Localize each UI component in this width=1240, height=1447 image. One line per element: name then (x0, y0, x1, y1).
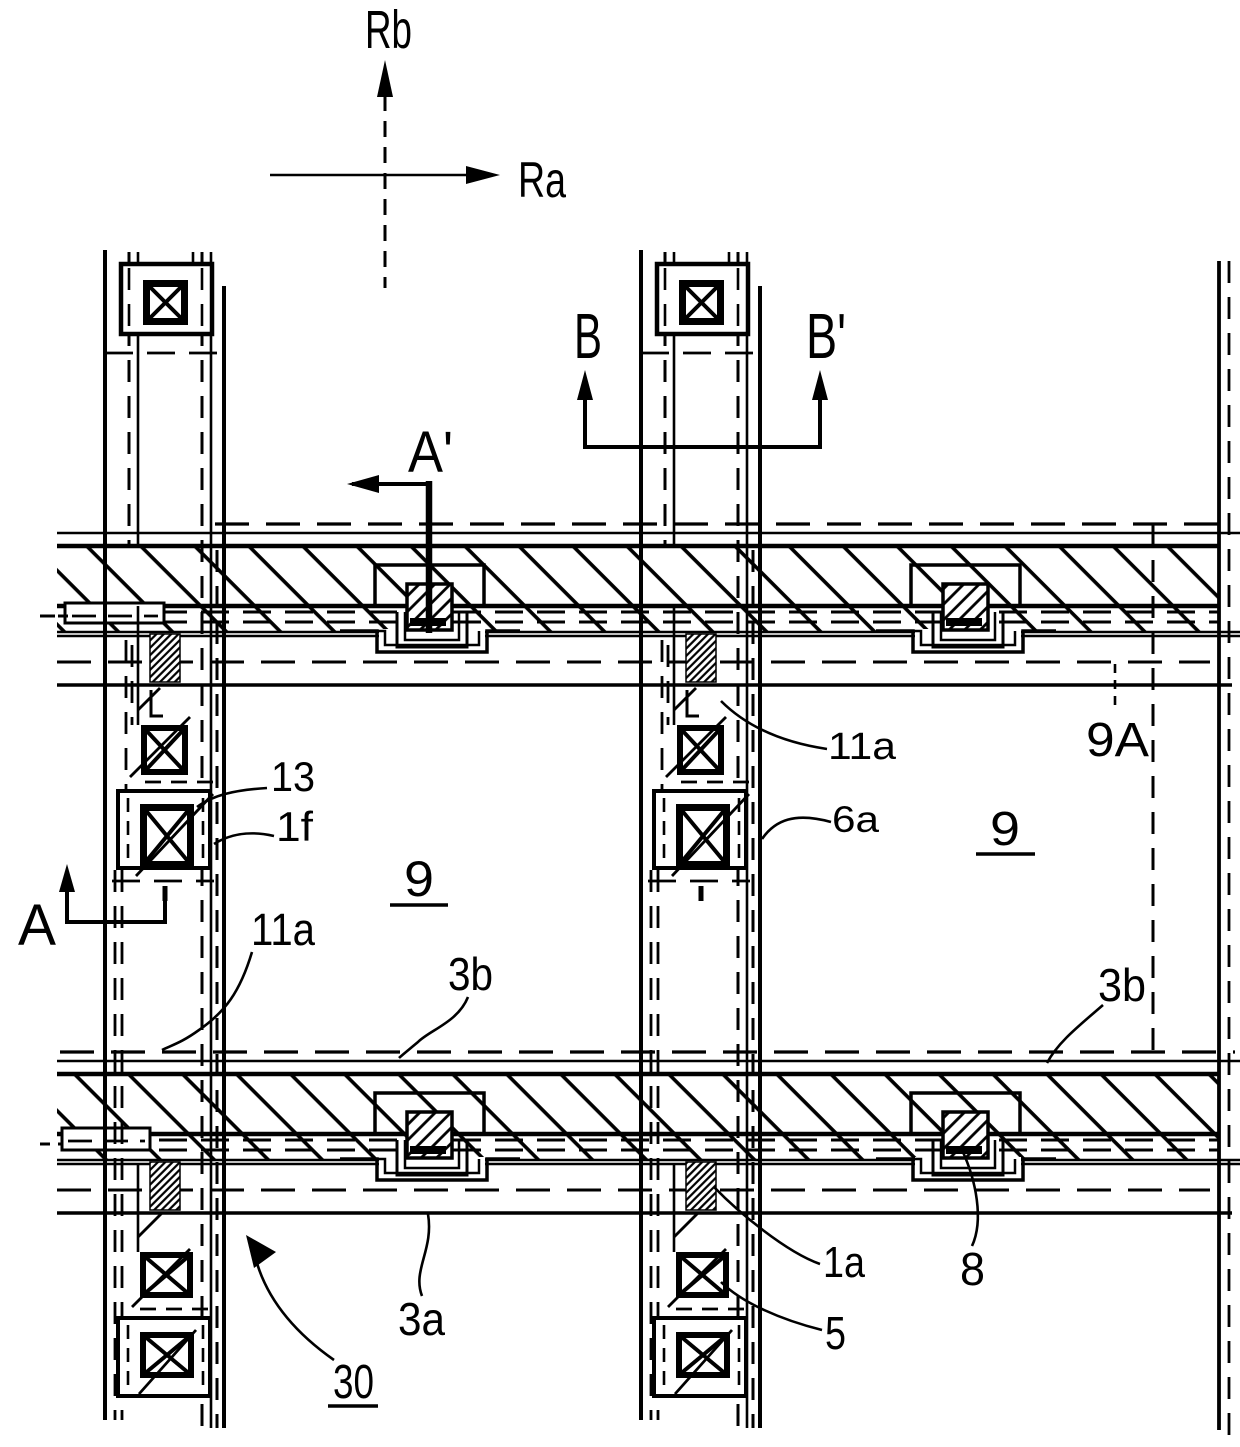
svg-text:3b: 3b (448, 948, 493, 1000)
svg-text:6a: 6a (832, 799, 879, 840)
svg-text:3a: 3a (398, 1293, 445, 1345)
svg-text:9A: 9A (1086, 714, 1149, 767)
svg-text:3b: 3b (1098, 959, 1146, 1011)
svg-text:9: 9 (404, 851, 434, 907)
svg-text:11a: 11a (828, 726, 897, 768)
svg-text:B': B' (806, 300, 846, 372)
svg-text:1f: 1f (276, 803, 313, 850)
svg-text:30: 30 (333, 1356, 374, 1409)
svg-text:Rb: Rb (365, 0, 412, 60)
svg-text:A: A (18, 893, 56, 958)
svg-text:1a: 1a (823, 1238, 865, 1287)
svg-text:5: 5 (825, 1307, 846, 1359)
svg-text:8: 8 (960, 1243, 985, 1295)
svg-text:A': A' (408, 420, 453, 485)
svg-text:13: 13 (271, 753, 315, 800)
svg-text:B: B (574, 300, 602, 372)
svg-text:Ra: Ra (518, 152, 566, 208)
svg-text:11a: 11a (251, 904, 316, 955)
svg-text:9: 9 (990, 803, 1020, 856)
